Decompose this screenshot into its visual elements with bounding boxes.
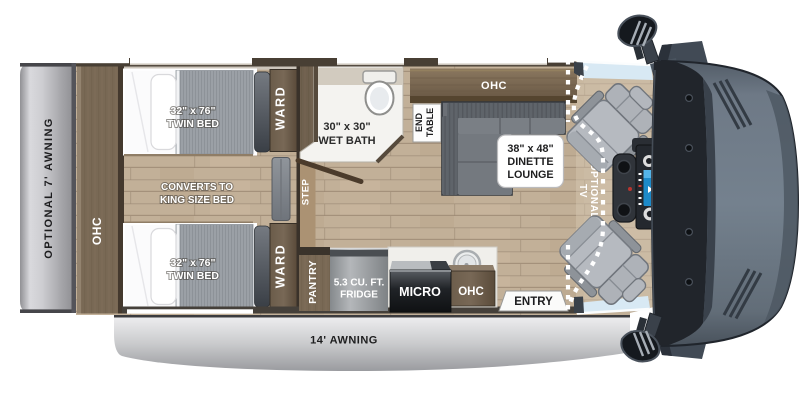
svg-text:OHC: OHC [90, 217, 104, 245]
svg-text:WARD: WARD [274, 244, 288, 289]
svg-text:FRIDGE: FRIDGE [340, 290, 378, 301]
svg-text:PANTRY: PANTRY [307, 260, 319, 304]
svg-text:TV: TV [577, 184, 588, 198]
svg-text:30" x 30": 30" x 30" [323, 121, 370, 133]
svg-text:TABLE: TABLE [425, 108, 435, 137]
svg-text:ENTRY: ENTRY [514, 296, 553, 308]
svg-text:38" x 48": 38" x 48" [507, 143, 553, 155]
svg-text:WET BATH: WET BATH [318, 135, 375, 147]
svg-text:OPTIONAL 7' AWNING: OPTIONAL 7' AWNING [43, 117, 55, 259]
svg-text:32" x 76": 32" x 76" [171, 257, 216, 269]
svg-text:LOUNGE: LOUNGE [507, 169, 553, 181]
svg-text:TWIN BED: TWIN BED [167, 270, 219, 282]
svg-text:14' AWNING: 14' AWNING [310, 335, 378, 347]
svg-text:OHC: OHC [458, 286, 484, 298]
svg-text:CONVERTS TO: CONVERTS TO [161, 182, 233, 193]
svg-text:32" x 76": 32" x 76" [171, 105, 216, 117]
svg-text:MICRO: MICRO [399, 285, 441, 299]
svg-text:STEP: STEP [301, 179, 312, 206]
svg-text:5.3 CU. FT.: 5.3 CU. FT. [334, 278, 385, 289]
svg-text:END: END [414, 113, 424, 133]
svg-text:WARD: WARD [274, 86, 288, 131]
svg-text:DINETTE: DINETTE [507, 156, 553, 168]
svg-text:OHC: OHC [481, 80, 507, 92]
svg-text:TWIN BED: TWIN BED [167, 118, 219, 130]
svg-text:KING SIZE BED: KING SIZE BED [160, 195, 234, 206]
